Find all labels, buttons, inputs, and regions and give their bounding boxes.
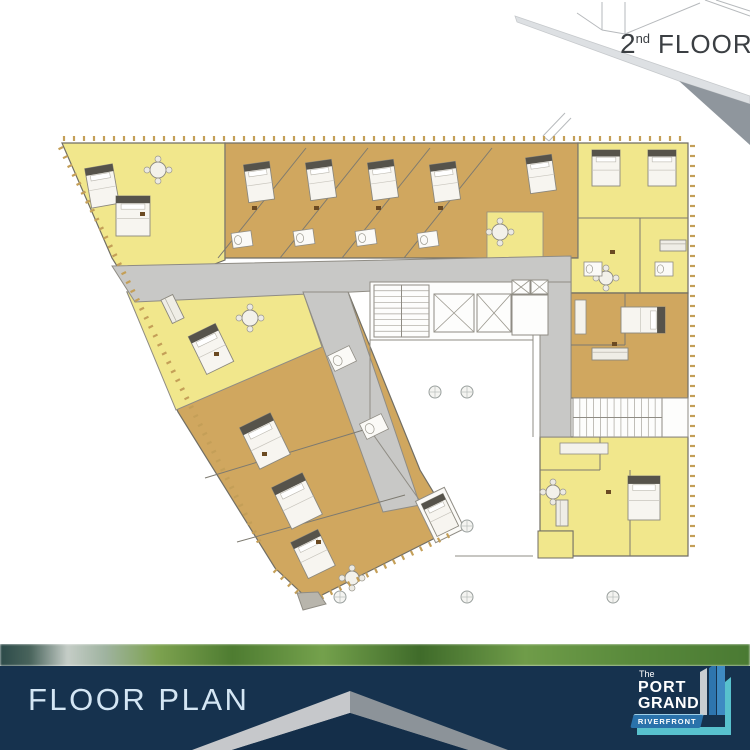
page: 2ndFLOOR FLOOR PLAN The PORT GRAND RIVER… bbox=[0, 0, 750, 750]
balcony-ticks-tick bbox=[375, 568, 377, 572]
unit-number-mark bbox=[214, 352, 219, 356]
sofa bbox=[592, 348, 628, 360]
dining-table-chair bbox=[247, 304, 253, 310]
logo-riverfront-text: RIVERFRONT bbox=[638, 717, 697, 726]
balcony-ticks-tick bbox=[402, 555, 404, 559]
bathroom bbox=[655, 262, 673, 276]
sofa-body bbox=[592, 348, 628, 360]
balcony-ticks-tick bbox=[63, 156, 67, 158]
unit-number-mark bbox=[606, 490, 611, 494]
floor-level-badge: 2ndFLOOR bbox=[620, 28, 750, 60]
dining-table-chair bbox=[166, 167, 172, 173]
brand-logo: The PORT GRAND RIVERFRONT bbox=[624, 666, 736, 750]
unit-number-mark bbox=[314, 206, 319, 210]
dining-table-chair bbox=[497, 218, 503, 224]
balcony-ticks-tick bbox=[384, 564, 386, 568]
lobby-room bbox=[512, 295, 548, 335]
dining-table-chair bbox=[603, 265, 609, 271]
dining-table-chair bbox=[613, 275, 619, 281]
ghost-outline-line bbox=[543, 113, 565, 136]
dining-table-chair bbox=[560, 489, 566, 495]
balcony-ticks-tick bbox=[281, 576, 284, 580]
balcony-ticks-tick bbox=[339, 586, 341, 590]
dining-table-chair bbox=[247, 326, 253, 332]
logo-grand: GRAND bbox=[638, 695, 699, 713]
bed bbox=[526, 154, 557, 193]
kitchen-counter bbox=[575, 300, 586, 334]
bed-pillow bbox=[121, 204, 145, 209]
dining-table-chair bbox=[258, 315, 264, 321]
dining-table-chair bbox=[497, 240, 503, 246]
balcony-ticks-tick bbox=[429, 542, 431, 546]
bed-pillow bbox=[596, 157, 616, 162]
bed bbox=[592, 150, 620, 186]
floor-word: FLOOR bbox=[658, 29, 750, 59]
dining-table-chair bbox=[144, 167, 150, 173]
bathroom bbox=[231, 231, 253, 249]
bathroom bbox=[584, 262, 602, 276]
bed bbox=[648, 150, 676, 186]
logo-bar-blue-1 bbox=[709, 666, 716, 715]
bed bbox=[243, 161, 274, 202]
bed bbox=[621, 307, 665, 333]
bed-pillow bbox=[650, 311, 656, 329]
logo-the: The bbox=[639, 669, 655, 679]
bathroom bbox=[417, 231, 439, 249]
ghost-outline-line bbox=[549, 118, 571, 141]
logo-riverfront-ribbon: RIVERFRONT bbox=[630, 714, 703, 728]
logo-frame-vertical bbox=[725, 677, 731, 735]
bathroom bbox=[355, 229, 377, 247]
unit-number-mark bbox=[376, 206, 381, 210]
dining-table-chair bbox=[550, 499, 556, 505]
unit-number-mark bbox=[140, 212, 145, 216]
unit-number-mark bbox=[316, 540, 321, 544]
dining-table-chair bbox=[155, 178, 161, 184]
bed bbox=[429, 161, 460, 202]
floor-number-suffix: nd bbox=[636, 31, 650, 46]
balcony-ticks-tick bbox=[411, 551, 413, 555]
unit-number-mark bbox=[438, 206, 443, 210]
dining-table-chair bbox=[359, 575, 365, 581]
balcony-ticks-tick bbox=[330, 590, 332, 594]
dining-table bbox=[546, 485, 560, 499]
bed-pillow bbox=[652, 157, 672, 162]
balcony-ticks-tick bbox=[68, 165, 72, 167]
footer-banner: FLOOR PLAN The PORT GRAND RIVERFRONT bbox=[0, 666, 750, 750]
floor-plan-drawing bbox=[0, 0, 750, 666]
room-white-right bbox=[662, 398, 688, 437]
balcony-ticks-tick bbox=[59, 147, 63, 149]
dining-table bbox=[150, 162, 166, 178]
unit-number-mark bbox=[262, 452, 267, 456]
balcony-ticks-tick bbox=[274, 569, 277, 573]
page-title: FLOOR PLAN bbox=[28, 682, 249, 718]
bed bbox=[367, 159, 398, 200]
logo-frame-horizontal bbox=[637, 727, 731, 735]
unit-number-mark bbox=[610, 250, 615, 254]
dining-table-chair bbox=[508, 229, 514, 235]
sofa-body bbox=[660, 240, 686, 251]
sofa-body bbox=[556, 500, 568, 526]
floor-number: 2 bbox=[620, 28, 636, 59]
sofa bbox=[556, 500, 568, 526]
dining-table-chair bbox=[349, 565, 355, 571]
bed-headboard bbox=[628, 476, 660, 484]
unit-bottom-right-notch bbox=[538, 531, 573, 558]
bed bbox=[628, 476, 660, 520]
dining-table-chair bbox=[155, 156, 161, 162]
landscape-photo-gradient bbox=[0, 644, 750, 666]
bed-headboard bbox=[648, 150, 676, 156]
dining-table-chair bbox=[540, 489, 546, 495]
bed-headboard bbox=[592, 150, 620, 156]
balcony-ticks-tick bbox=[366, 573, 368, 577]
bed-headboard bbox=[116, 196, 150, 203]
bathroom-room bbox=[584, 262, 602, 276]
dining-table-chair bbox=[486, 229, 492, 235]
dining-table-chair bbox=[603, 285, 609, 291]
balcony-ticks-tick bbox=[420, 547, 422, 551]
bathroom-room bbox=[655, 262, 673, 276]
wireframe-line bbox=[577, 13, 602, 30]
unit-number-mark bbox=[612, 342, 617, 346]
dining-table-chair bbox=[339, 575, 345, 581]
balcony-ticks-tick bbox=[393, 560, 395, 564]
wireframe-line bbox=[705, 0, 750, 16]
bed bbox=[305, 159, 336, 200]
logo-bar-blue-2 bbox=[717, 666, 725, 715]
balcony-ticks-tick bbox=[288, 583, 291, 587]
logo-bar-gray bbox=[700, 668, 707, 715]
dining-table bbox=[242, 310, 258, 326]
dining-table bbox=[492, 224, 508, 240]
bed-pillow bbox=[633, 485, 655, 491]
unit-number-mark bbox=[252, 206, 257, 210]
bathroom bbox=[293, 229, 315, 247]
kitchen-counter bbox=[560, 443, 608, 454]
bed-headboard bbox=[657, 307, 665, 333]
dining-table-chair bbox=[550, 479, 556, 485]
landscape-photo-strip bbox=[0, 644, 750, 666]
sofa bbox=[660, 240, 686, 251]
dining-table-chair bbox=[236, 315, 242, 321]
